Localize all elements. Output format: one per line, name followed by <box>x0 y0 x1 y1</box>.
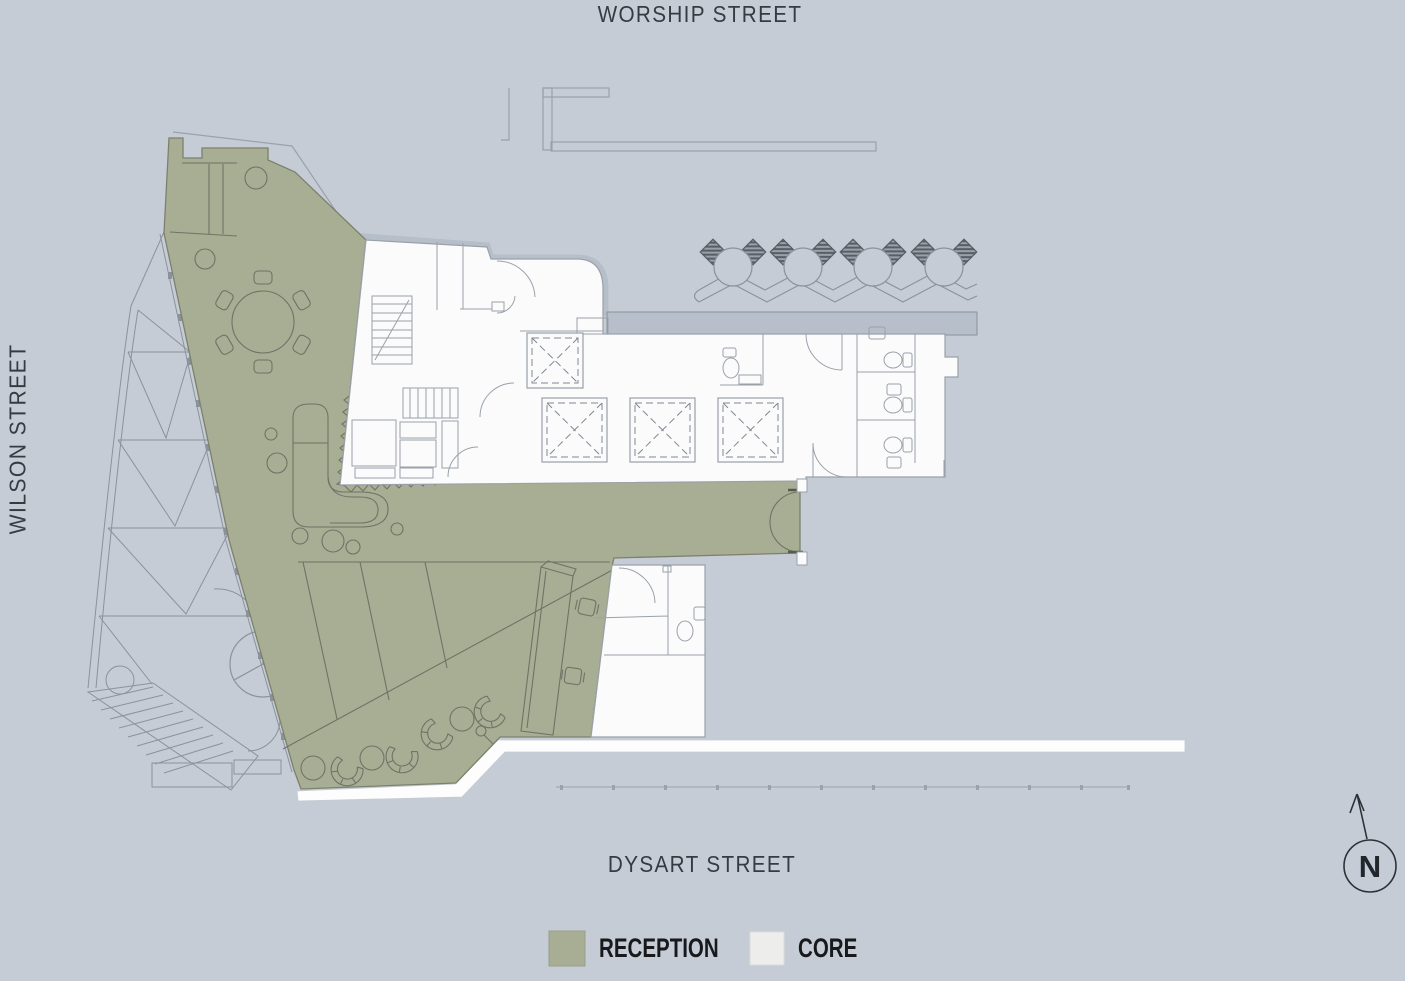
terrace-deck <box>607 312 977 335</box>
door-jamb <box>797 552 807 565</box>
terrace-table <box>770 239 835 286</box>
floor-plan-page: WORSHIP STREET WILSON STREET DYSART STRE… <box>0 0 1405 981</box>
terrace-tables <box>700 239 976 286</box>
street-label-dysart: DYSART STREET <box>567 851 837 878</box>
worship-street-pavement-outline <box>501 88 876 151</box>
terrace-table <box>840 239 905 286</box>
entrance-steps <box>88 683 281 790</box>
street-label-wilson: WILSON STREET <box>5 347 32 535</box>
north-compass: N <box>1330 782 1405 897</box>
core-swatch-icon <box>749 931 785 966</box>
terrace-table <box>700 239 765 286</box>
door-jamb <box>797 479 807 492</box>
reception-swatch-icon <box>548 930 586 967</box>
elevator-shaft <box>718 398 783 462</box>
legend: RECEPTION CORE <box>0 930 1405 967</box>
legend-label-core: CORE <box>798 933 844 964</box>
street-label-worship: WORSHIP STREET <box>565 1 835 28</box>
elevator-shaft <box>630 398 695 462</box>
compass-label: N <box>1359 849 1381 884</box>
elevator-shaft <box>527 333 583 388</box>
floor-plan-canvas <box>0 0 1405 981</box>
legend-label-reception: RECEPTION <box>599 933 684 964</box>
elevator-shaft <box>542 398 607 462</box>
